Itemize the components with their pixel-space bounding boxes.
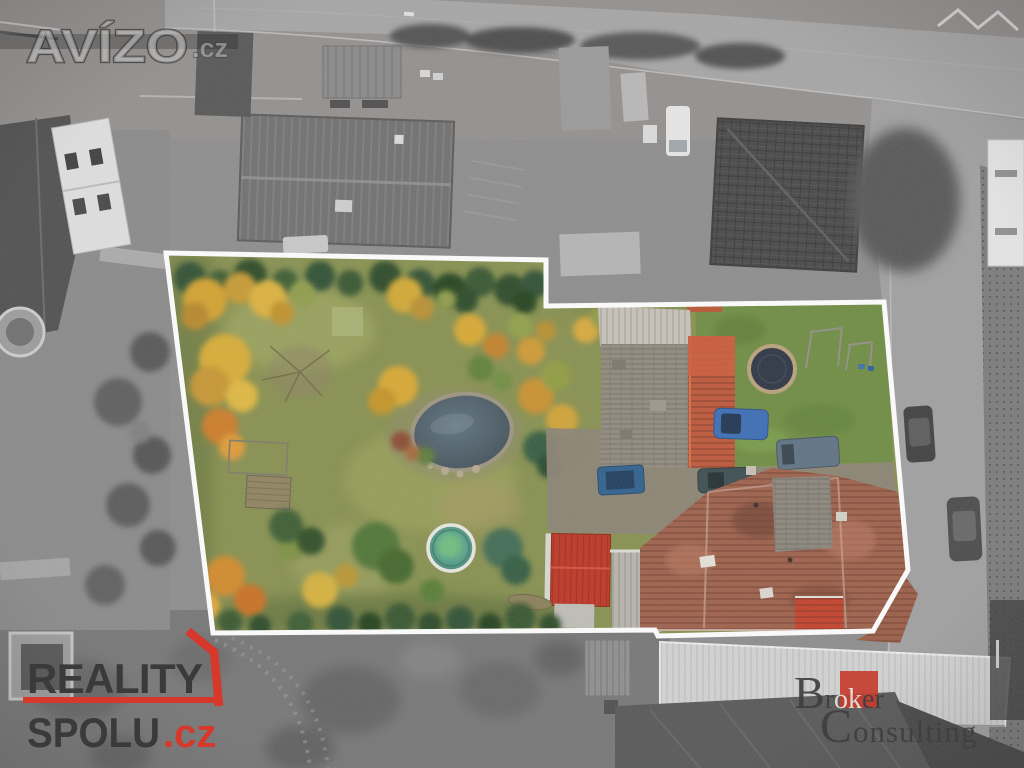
spolu-text: SPOLU [27,709,160,756]
spolu-tld-text: .cz [163,712,216,756]
aerial-photo: AVÍZO .cz REALITY SPOLU .cz Broker Consu… [0,0,1024,768]
aerial-photo-canvas: AVÍZO .cz REALITY SPOLU .cz Broker Consu… [0,0,1024,768]
avizo-brand-text: AVÍZO [26,20,188,72]
avizo-tld-text: .cz [192,33,228,63]
reality-text: REALITY [27,655,203,702]
vignette-overlay [0,0,1024,768]
reality-spolu-underline [23,697,219,703]
